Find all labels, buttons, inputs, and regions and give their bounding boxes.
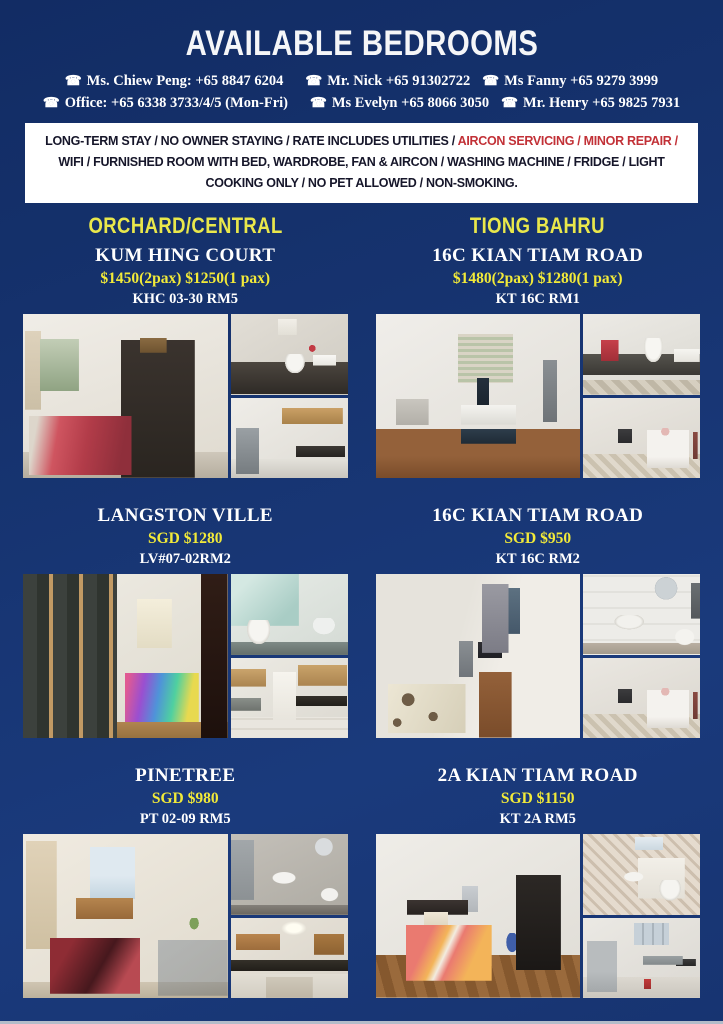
photo-collage: [23, 314, 348, 478]
listing-price: $1450(2pax) $1250(1 pax): [23, 268, 348, 289]
bedroom-photo: [23, 834, 228, 998]
contact-entry: ☎Ms Evelyn +65 8066 3050: [310, 92, 489, 114]
listing-price: $1480(2pax) $1280(1 pax): [376, 268, 701, 289]
listing-price: SGD $950: [376, 528, 701, 549]
contact-entry: ☎Mr. Henry +65 9825 7931: [501, 92, 680, 114]
listing-code: KHC 03-30 RM5: [23, 289, 348, 309]
page-title-text: AVAILABLE BEDROOMS: [185, 25, 538, 63]
section-tiong-bahru: TIONG BAHRU: [376, 211, 701, 241]
bedroom-photo: [376, 834, 581, 998]
photo-collage: [376, 314, 701, 478]
listing-card-16c-kian-tiam-rm1: 16C KIAN TIAM ROAD $1480(2pax) $1280(1 p…: [376, 244, 701, 478]
bedroom-photo: [376, 574, 581, 738]
phone-icon: ☎: [305, 70, 322, 91]
contact-text: Office: +65 6338 3733/4/5 (Mon-Fri): [65, 95, 288, 111]
photo-collage: [376, 834, 701, 998]
sub-photos: [231, 574, 348, 738]
contact-text: Ms Fanny +65 9279 3999: [504, 73, 658, 89]
kitchen-photo: [231, 398, 348, 479]
photo-collage: [376, 574, 701, 738]
phone-icon: ☎: [65, 70, 82, 91]
listing-card-16c-kian-tiam-rm2: 16C KIAN TIAM ROAD SGD $950 KT 16C RM2: [376, 504, 701, 738]
listing-price: SGD $1150: [376, 788, 701, 809]
sub-photos: [231, 314, 348, 478]
listing-name: 16C KIAN TIAM ROAD: [376, 244, 701, 268]
listing-code: KT 16C RM1: [376, 289, 701, 309]
listing-card-kum-hing-court: KUM HING COURT $1450(2pax) $1250(1 pax) …: [23, 244, 348, 478]
listing-code: PT 02-09 RM5: [23, 809, 348, 829]
page-title: AVAILABLE BEDROOMS: [0, 0, 723, 63]
photo-collage: [23, 834, 348, 998]
listing-code: LV#07-02RM2: [23, 549, 348, 569]
kitchen-photo: [583, 918, 700, 999]
contact-lines: ☎Ms. Chiew Peng: +65 8847 6204☎Mr. Nick …: [0, 70, 723, 114]
terms-text-2: WIFI / FURNISHED ROOM WITH BED, WARDROBE…: [58, 155, 664, 190]
bedroom-photo: [376, 314, 581, 478]
hallway-photo: [583, 398, 700, 479]
bedroom-photo: [23, 574, 228, 738]
listings-grid: KUM HING COURT $1450(2pax) $1250(1 pax) …: [0, 244, 723, 998]
sub-photos: [583, 574, 700, 738]
terms-highlight: AIRCON SERVICING / MINOR REPAIR /: [458, 134, 678, 148]
photo-collage: [23, 574, 348, 738]
hallway-photo: [583, 658, 700, 739]
listing-name: PINETREE: [23, 764, 348, 788]
bedroom-photo: [23, 314, 228, 478]
terms-box: LONG-TERM STAY / NO OWNER STAYING / RATE…: [25, 123, 698, 203]
listing-price: SGD $980: [23, 788, 348, 809]
sub-photos: [231, 834, 348, 998]
contact-text: Ms. Chiew Peng: +65 8847 6204: [87, 73, 284, 89]
listing-card-pinetree: PINETREE SGD $980 PT 02-09 RM5: [23, 764, 348, 998]
listing-name: LANGSTON VILLE: [23, 504, 348, 528]
bathroom-photo: [583, 574, 700, 655]
sub-photos: [583, 314, 700, 478]
contact-entry: ☎Mr. Nick +65 91302722: [305, 70, 470, 92]
contact-text: Mr. Nick +65 91302722: [327, 73, 470, 89]
kitchen-photo: [231, 918, 348, 999]
bathroom-photo: [231, 574, 348, 655]
contact-line-1: ☎Ms. Chiew Peng: +65 8847 6204☎Mr. Nick …: [0, 70, 723, 92]
terms-text-1: LONG-TERM STAY / NO OWNER STAYING / RATE…: [45, 134, 457, 148]
listing-name: KUM HING COURT: [23, 244, 348, 268]
flyer-page: AVAILABLE BEDROOMS ☎Ms. Chiew Peng: +65 …: [0, 0, 723, 1024]
listing-card-2a-kian-tiam: 2A KIAN TIAM ROAD SGD $1150 KT 2A RM5: [376, 764, 701, 998]
contact-text: Mr. Henry +65 9825 7931: [523, 95, 680, 111]
sub-photos: [583, 834, 700, 998]
phone-icon: ☎: [43, 92, 60, 113]
listing-code: KT 2A RM5: [376, 809, 701, 829]
listing-name: 16C KIAN TIAM ROAD: [376, 504, 701, 528]
phone-icon: ☎: [482, 70, 499, 91]
contact-line-2: ☎Office: +65 6338 3733/4/5 (Mon-Fri)☎Ms …: [0, 92, 723, 114]
contact-text: Ms Evelyn +65 8066 3050: [332, 95, 489, 111]
bathroom-photo: [231, 314, 348, 395]
listing-code: KT 16C RM2: [376, 549, 701, 569]
bathroom-photo: [583, 314, 700, 395]
contact-entry: ☎Ms. Chiew Peng: +65 8847 6204: [65, 70, 284, 92]
phone-icon: ☎: [501, 92, 518, 113]
section-orchard-central: ORCHARD/CENTRAL: [23, 211, 348, 241]
bathroom-photo: [583, 834, 700, 915]
contact-entry: ☎Ms Fanny +65 9279 3999: [482, 70, 658, 92]
listing-card-langston-ville: LANGSTON VILLE SGD $1280 LV#07-02RM2: [23, 504, 348, 738]
contact-entry: ☎Office: +65 6338 3733/4/5 (Mon-Fri): [43, 92, 288, 114]
listing-name: 2A KIAN TIAM ROAD: [376, 764, 701, 788]
bathroom-photo: [231, 834, 348, 915]
phone-icon: ☎: [310, 92, 327, 113]
listing-price: SGD $1280: [23, 528, 348, 549]
kitchen-photo: [231, 658, 348, 739]
section-headers: ORCHARD/CENTRAL TIONG BAHRU: [0, 211, 723, 241]
